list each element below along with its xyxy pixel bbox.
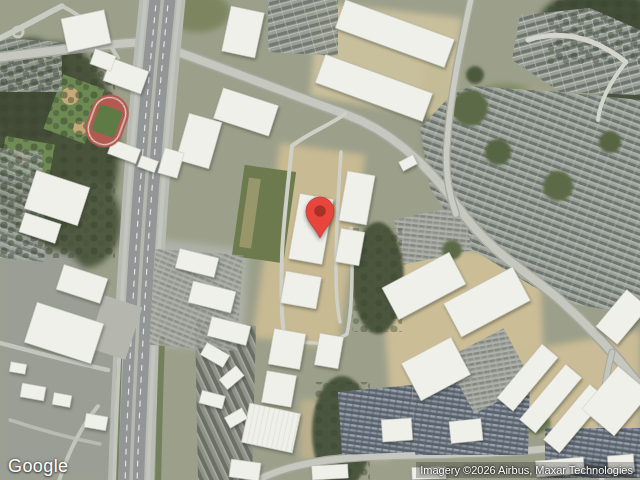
map-attribution: Imagery ©2026 Airbus, Maxar Technologies (416, 462, 637, 478)
satellite-imagery (0, 0, 640, 480)
satellite-map[interactable]: Google Imagery ©2026 Airbus, Maxar Techn… (0, 0, 640, 480)
google-logo[interactable]: Google (8, 456, 68, 477)
